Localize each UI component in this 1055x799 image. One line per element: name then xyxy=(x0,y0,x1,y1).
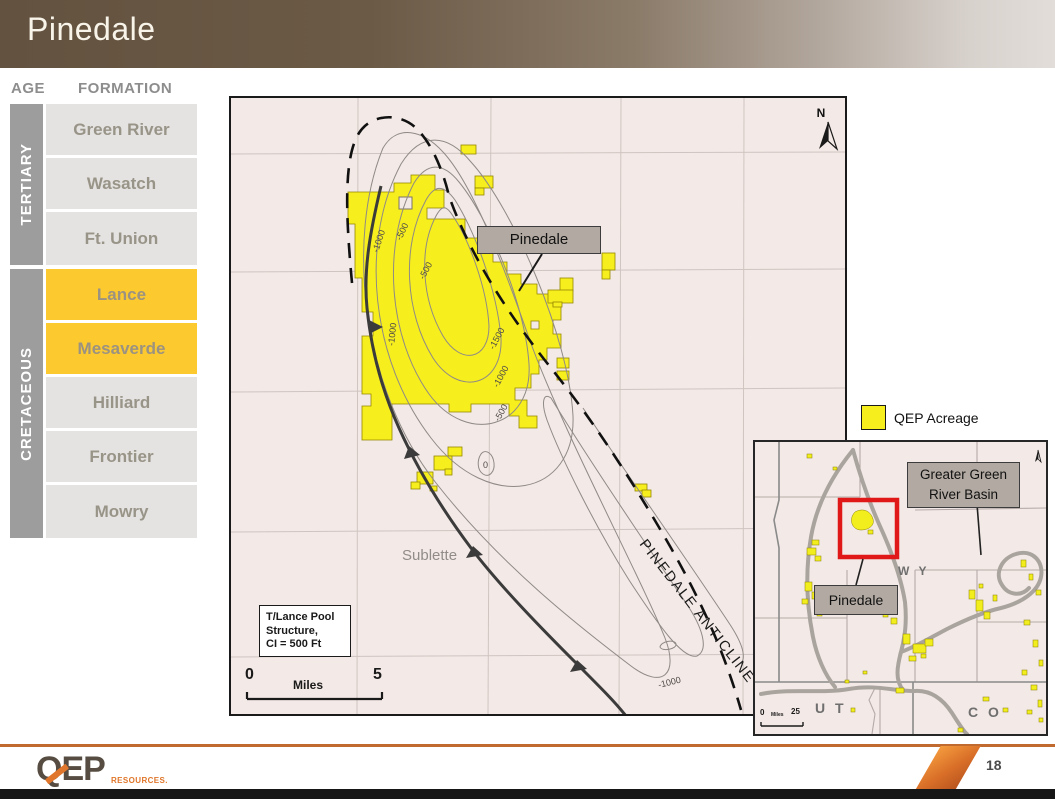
north-label: N xyxy=(809,106,833,120)
formation-row: Mesaverde xyxy=(46,323,197,374)
footer-rule xyxy=(0,744,1055,747)
age-group-tertiary: TERTIARY xyxy=(10,104,43,265)
formation-row: Lance xyxy=(46,269,197,320)
acreage-main-polygon xyxy=(348,175,561,440)
state-label-co: C O xyxy=(968,704,1002,720)
map-scalebar: 0 Miles 5 xyxy=(243,666,393,704)
age-group-tertiary-label: TERTIARY xyxy=(18,143,35,225)
qep-logo-subtext: RESOURCES. xyxy=(111,776,168,785)
state-label-wy: W Y xyxy=(898,564,929,578)
scale-start: 0 xyxy=(245,666,254,684)
inset-map: Greater Green River Basin Pinedale W Y U… xyxy=(753,440,1048,736)
inset-north-arrow-icon xyxy=(1035,450,1041,462)
page-number: 18 xyxy=(986,757,1002,773)
inset-scale-end: 25 xyxy=(791,707,800,716)
basin-label-line: Greater Green xyxy=(908,465,1019,485)
formation-row: Hilliard xyxy=(46,377,197,428)
header-bar: Pinedale xyxy=(0,0,1055,68)
acreage-swatch-icon xyxy=(861,405,886,430)
bottom-bar xyxy=(0,789,1055,799)
pinedale-map-label: Pinedale xyxy=(477,226,601,254)
north-arrow: N xyxy=(809,106,833,150)
structure-note-line: Structure, xyxy=(266,625,346,639)
age-group-cretaceous-label: CRETACEOUS xyxy=(18,347,35,461)
pinedale-leader-line xyxy=(856,559,863,585)
footer-swoosh-icon xyxy=(915,746,980,790)
age-column-header: AGE xyxy=(11,80,45,97)
acreage-hole xyxy=(531,321,539,329)
inset-scale-start: 0 xyxy=(760,708,764,717)
scale-unit: Miles xyxy=(293,678,323,692)
structure-note-line: CI = 500 Ft xyxy=(266,638,346,652)
pinedale-inset-label: Pinedale xyxy=(814,585,898,615)
qep-logo: QEP RESOURCES. xyxy=(36,750,176,790)
scale-end: 5 xyxy=(373,666,382,684)
formation-row: Frontier xyxy=(46,431,197,482)
state-label-ut: U T xyxy=(815,700,847,716)
acreage-legend-label: QEP Acreage xyxy=(894,410,979,426)
anticline-label: PINEDALE ANTICLINE xyxy=(636,537,758,687)
inset-scalebar: 0 Miles 25 xyxy=(759,708,809,730)
basin-label-line: River Basin xyxy=(908,485,1019,505)
age-group-cretaceous: CRETACEOUS xyxy=(10,269,43,538)
formation-column-header: FORMATION xyxy=(78,80,172,97)
county-label: Sublette xyxy=(402,547,457,564)
acreage-legend: QEP Acreage xyxy=(861,405,979,430)
basin-leader-line xyxy=(977,504,981,555)
formation-row: Green River xyxy=(46,104,197,155)
structure-note-line: T/Lance Pool xyxy=(266,611,346,625)
svg-text:-500: -500 xyxy=(492,402,510,423)
formation-row: Wasatch xyxy=(46,158,197,209)
basin-label: Greater Green River Basin xyxy=(907,462,1020,508)
formation-row: Ft. Union xyxy=(46,212,197,265)
inset-scale-unit: Miles xyxy=(771,712,784,718)
svg-text:0: 0 xyxy=(483,460,488,470)
page-title: Pinedale xyxy=(27,11,156,48)
slide: Pinedale AGE FORMATION TERTIARY CRETACEO… xyxy=(0,0,1055,799)
formation-row: Mowry xyxy=(46,485,197,538)
structure-note-box: T/Lance Pool Structure, CI = 500 Ft xyxy=(259,605,351,657)
